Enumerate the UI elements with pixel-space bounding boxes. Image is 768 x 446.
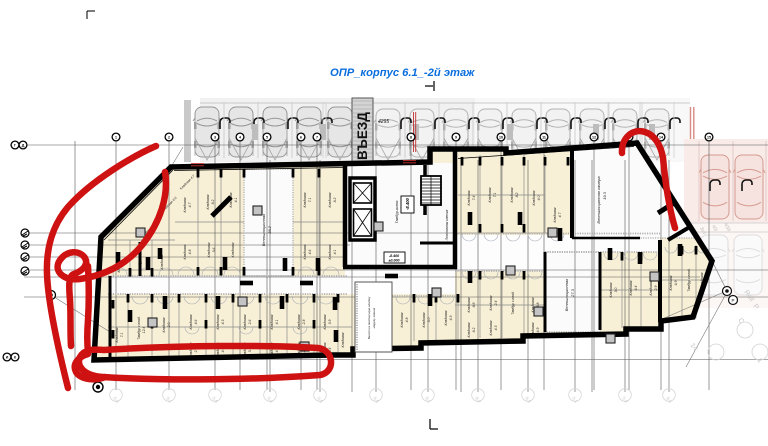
svg-text:4.3: 4.3 <box>449 316 453 321</box>
svg-text:Кладовая: Кладовая <box>400 312 404 327</box>
svg-text:7.1: 7.1 <box>493 193 497 198</box>
svg-text:Кладовая: Кладовая <box>328 192 332 207</box>
svg-text:19.3: 19.3 <box>602 191 607 200</box>
svg-text:Кладовая: Кладовая <box>510 187 514 202</box>
svg-text:Кладовая: Кладовая <box>422 312 426 327</box>
svg-text:4.1: 4.1 <box>234 198 238 203</box>
svg-text:Кладовая: Кладовая <box>303 244 307 259</box>
svg-text:ОПР_корпус 6.1_-2й этаж: ОПР_корпус 6.1_-2й этаж <box>330 67 475 79</box>
svg-text:3.0: 3.0 <box>614 288 618 293</box>
svg-text:3.9: 3.9 <box>328 320 332 325</box>
svg-text:Кладовая: Кладовая <box>444 310 448 325</box>
svg-text:2.8: 2.8 <box>302 320 306 326</box>
svg-text:7: 7 <box>316 136 318 140</box>
svg-text:5: 5 <box>266 136 268 140</box>
svg-text:ВЪЕЗД: ВЪЕЗД <box>355 112 370 160</box>
svg-text:8.2: 8.2 <box>211 200 215 205</box>
svg-text:4.6: 4.6 <box>194 320 198 325</box>
svg-text:-8.400: -8.400 <box>389 254 399 258</box>
svg-text:Выход на лестничную клетку: Выход на лестничную клетку <box>367 296 371 339</box>
svg-text:И: И <box>6 356 9 360</box>
svg-text:9: 9 <box>455 136 457 140</box>
svg-text:6.4: 6.4 <box>634 286 638 291</box>
svg-text:3.0: 3.0 <box>427 318 431 323</box>
svg-text:Кладовая: Кладовая <box>649 280 653 295</box>
svg-text:12: 12 <box>592 136 596 140</box>
svg-text:Кладовая: Кладовая <box>467 190 471 205</box>
svg-text:4.7: 4.7 <box>188 203 192 208</box>
svg-text:3.6: 3.6 <box>212 248 216 253</box>
svg-text:Кладовая: Кладовая <box>341 332 345 347</box>
svg-text:Кладовая: Кладовая <box>115 327 119 342</box>
svg-text:Кладовая: Кладовая <box>328 244 332 259</box>
svg-text:Кладовая: Кладовая <box>532 190 536 205</box>
svg-text:11: 11 <box>542 136 546 140</box>
svg-text:Кладовая: Кладовая <box>162 317 166 332</box>
svg-text:4.0: 4.0 <box>537 196 541 201</box>
svg-text:6.9: 6.9 <box>674 281 678 286</box>
svg-text:2.0: 2.0 <box>167 323 171 329</box>
svg-text:3: 3 <box>214 136 216 140</box>
svg-text:Кладовая: Кладовая <box>231 242 235 257</box>
svg-text:27.3: 27.3 <box>570 288 575 298</box>
svg-text:Кладовая: Кладовая <box>207 242 211 257</box>
svg-text:38.2: 38.2 <box>267 225 272 234</box>
svg-text:Тамбур с клад.: Тамбур с клад. <box>137 316 141 339</box>
svg-text:8.9: 8.9 <box>472 303 476 308</box>
svg-text:Р: Р <box>731 298 734 303</box>
svg-text:Кладовая: Кладовая <box>189 314 193 329</box>
svg-text:Кладовая: Кладовая <box>489 295 493 310</box>
svg-text:4.6: 4.6 <box>308 250 312 255</box>
svg-text:6.9: 6.9 <box>536 328 540 333</box>
svg-text:8: 8 <box>410 136 412 140</box>
svg-text:Вентиляционная камера: Вентиляционная камера <box>596 176 601 224</box>
svg-text:4: 4 <box>239 136 241 140</box>
svg-text:Вентиляционная: Вентиляционная <box>564 278 569 311</box>
svg-text:8.2: 8.2 <box>333 198 337 203</box>
svg-text:4.3: 4.3 <box>221 320 225 325</box>
svg-text:4295: 4295 <box>378 119 389 125</box>
svg-text:14: 14 <box>659 136 663 140</box>
svg-text:8.2: 8.2 <box>515 193 519 198</box>
svg-text:±0.000: ±0.000 <box>389 259 400 263</box>
svg-text:2.9: 2.9 <box>654 286 658 292</box>
svg-text:1: 1 <box>115 136 117 140</box>
svg-text:Лестничная клетка: Лестничная клетка <box>445 210 449 242</box>
svg-text:Кладовая: Кладовая <box>297 314 301 329</box>
svg-text:4.3: 4.3 <box>494 326 498 331</box>
svg-text:Кладовая: Кладовая <box>467 297 471 312</box>
svg-text:4.8: 4.8 <box>188 250 192 255</box>
svg-text:Кладовая: Кладовая <box>206 194 210 209</box>
svg-text:8.2: 8.2 <box>472 328 476 333</box>
svg-text:4.1: 4.1 <box>275 320 279 325</box>
svg-text:6: 6 <box>300 136 302 140</box>
svg-text:Кладовая: Кладовая <box>183 244 187 259</box>
svg-text:Вентиляционная: Вентиляционная <box>261 213 266 246</box>
svg-text:Кладовая: Кладовая <box>216 314 220 329</box>
svg-text:4.1: 4.1 <box>333 250 337 255</box>
svg-text:12.4: 12.4 <box>142 327 146 334</box>
svg-text:10: 10 <box>499 136 503 140</box>
svg-text:Кладовая: Кладовая <box>488 187 492 202</box>
svg-text:2.6: 2.6 <box>248 320 252 326</box>
svg-text:Кладовая: Кладовая <box>629 280 633 295</box>
svg-text:Кладовая: Кладовая <box>270 314 274 329</box>
svg-text:Тамбур-шлюз: Тамбур-шлюз <box>395 200 399 223</box>
svg-text:2.4: 2.4 <box>494 301 498 307</box>
svg-text:Кладовая: Кладовая <box>489 320 493 335</box>
svg-text:4.7: 4.7 <box>558 213 562 218</box>
svg-text:Д: Д <box>22 144 25 148</box>
svg-text:Тамбур с клад.: Тамбур с клад. <box>687 268 691 291</box>
svg-text:4.8: 4.8 <box>405 318 409 323</box>
svg-text:Кладовая: Кладовая <box>467 322 471 337</box>
svg-text:7.4: 7.4 <box>472 196 476 201</box>
svg-text:Кладовая: Кладовая <box>609 282 613 297</box>
svg-text:Кладовая: Кладовая <box>553 207 557 222</box>
svg-text:наружу здания: наружу здания <box>372 307 376 328</box>
svg-text:Кладовая: Кладовая <box>303 192 307 207</box>
svg-text:7.1: 7.1 <box>120 333 124 338</box>
svg-text:Кладовая: Кладовая <box>669 275 673 290</box>
svg-text:-8.400: -8.400 <box>405 197 410 210</box>
svg-text:Тамбур с клад.: Тамбур с клад. <box>511 291 515 314</box>
svg-text:Кладовая: Кладовая <box>183 197 187 212</box>
svg-text:15: 15 <box>707 136 711 140</box>
svg-text:2: 2 <box>168 136 170 140</box>
svg-text:7.1: 7.1 <box>308 198 312 203</box>
svg-text:Кладовая: Кладовая <box>243 314 247 329</box>
svg-text:Кладовая: Кладовая <box>323 314 327 329</box>
svg-text:Г: Г <box>14 144 16 148</box>
